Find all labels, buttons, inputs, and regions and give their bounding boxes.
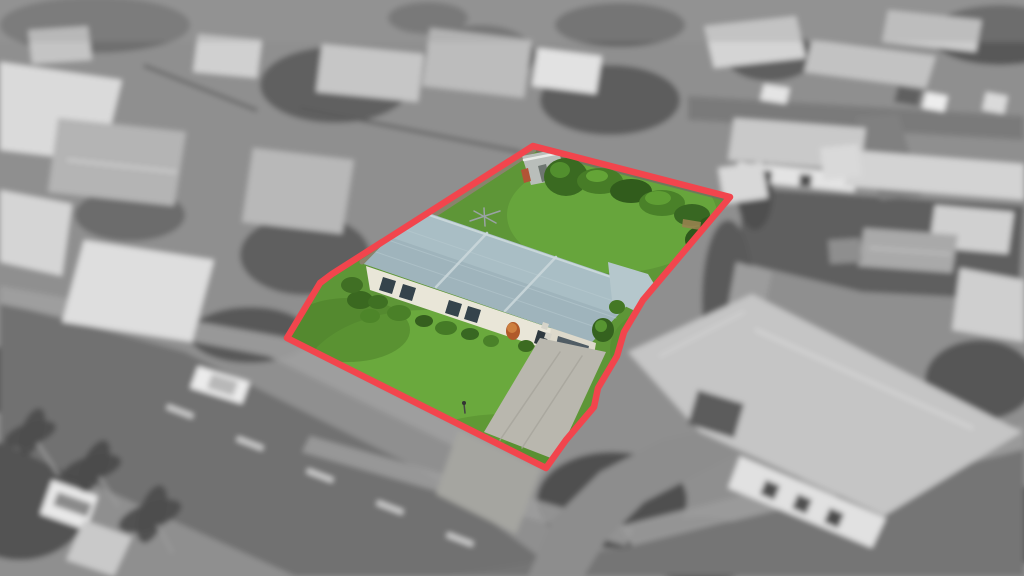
front-bush <box>387 305 411 321</box>
house-roof <box>242 148 354 234</box>
front-bush <box>518 340 534 352</box>
front-bush <box>483 335 499 347</box>
front-bush <box>461 328 479 340</box>
aerial-scene <box>0 0 1024 576</box>
orange-plant <box>507 323 517 333</box>
garden-shed <box>820 144 862 180</box>
front-bush <box>609 300 625 314</box>
house-roof <box>952 268 1024 342</box>
hedge-highlight <box>645 191 671 205</box>
front-bush <box>341 277 363 293</box>
car <box>982 92 1008 114</box>
house-roof <box>48 118 186 206</box>
top-haze <box>0 0 1024 42</box>
house-roof <box>0 190 72 276</box>
front-bush <box>368 295 388 309</box>
hedge-bush <box>550 162 570 178</box>
garden-shed <box>828 238 862 264</box>
front-bush <box>415 315 433 327</box>
tv-antenna <box>484 208 485 226</box>
front-bush <box>360 309 380 323</box>
house-roof <box>316 44 424 102</box>
front-bush <box>435 321 457 335</box>
house-window <box>799 174 812 187</box>
front-bush <box>595 320 607 332</box>
aerial-property-photo <box>0 0 1024 576</box>
hedge-highlight <box>586 170 608 182</box>
carport-awning <box>532 48 602 94</box>
sprinkler <box>462 401 466 405</box>
sprinkler <box>464 404 465 413</box>
